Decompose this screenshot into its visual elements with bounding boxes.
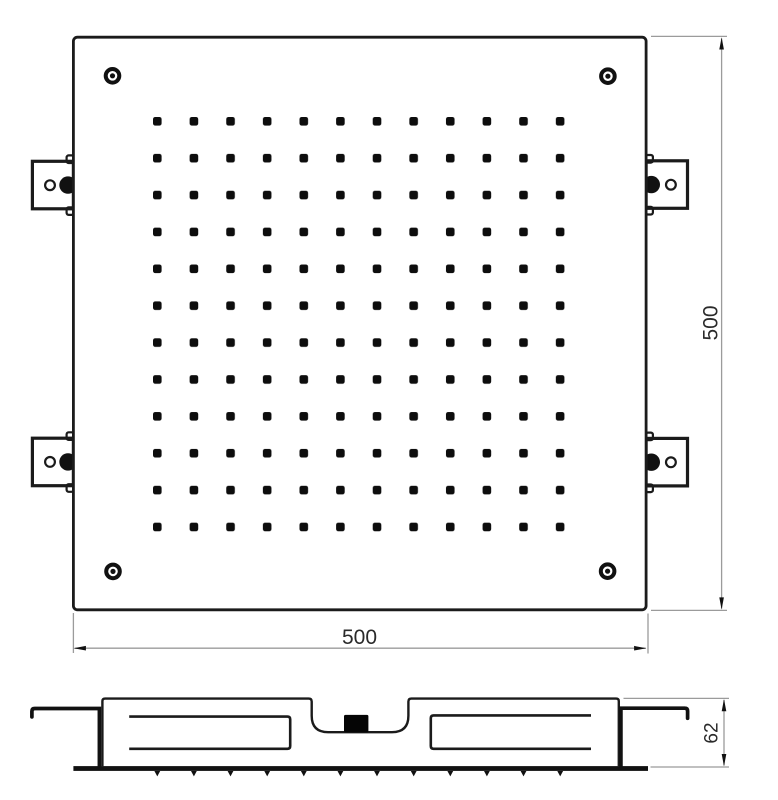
svg-text:62: 62	[702, 722, 723, 743]
svg-text:500: 500	[342, 626, 377, 649]
svg-text:500: 500	[700, 305, 723, 340]
